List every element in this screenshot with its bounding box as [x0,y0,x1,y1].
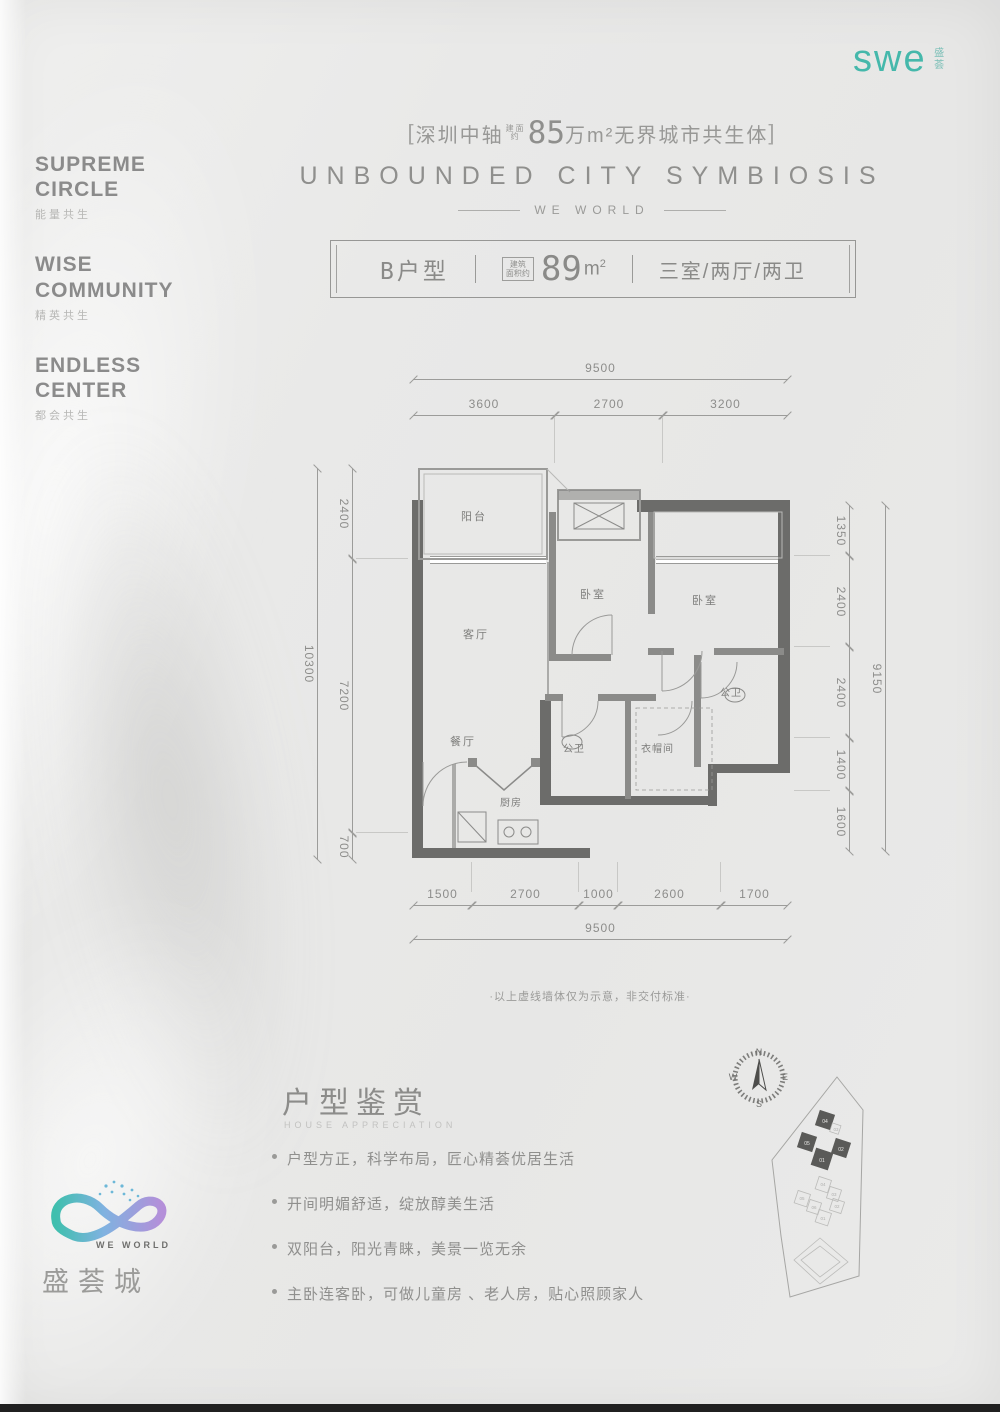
area-unit-m: m [584,258,600,279]
slogan-item: ENDLESS CENTER 都会共生 [35,353,205,423]
extension-line [554,417,555,463]
list-item: 开间明媚舒适，绽放醇美生活 [272,1193,692,1214]
unit-title-bar: B户型 建筑 面积约 89 m2 三室/两厅/两卫 [330,240,856,298]
bullet-icon [272,1199,277,1204]
door-entry [423,762,467,806]
divider [632,255,633,283]
room-label-dining: 餐厅 [450,733,476,749]
unit-rooms: 三室/两厅/两卫 [659,255,806,284]
door-bath-a [562,701,598,737]
balcony-step [547,469,570,492]
dim-left-seg: 2400 [335,468,353,559]
site-buildings-dark: 04 05 02 01 03 [797,1110,851,1170]
dim-left-seg: 7200 [335,559,353,833]
dim-value: 700 [337,835,351,858]
footer-logo: WE WORLD 盛荟城 [34,1168,214,1263]
shaft-hatch [558,490,640,500]
room-label-balcony: 阳台 [461,508,487,524]
header: [ 深圳中轴 建面 约 85 万m²无界城市共生体 ] UNBOUNDED CI… [292,118,892,217]
slogan-en: SUPREME CIRCLE [35,152,205,202]
floor-plan-detail [400,460,800,870]
slogan-en: ENDLESS CENTER [35,353,205,403]
area-tag-line1: 建筑 [510,260,526,269]
bracket-right: ] [768,120,776,146]
brand-logo: swe 盛荟 [853,40,942,78]
door-closet [658,701,692,735]
area-tag: 建筑 面积约 [502,257,534,281]
bracket-left: [ [408,120,416,146]
bullet-icon [272,1289,277,1294]
header-title-en: UNBOUNDED CITY SYMBIOSIS [292,162,892,191]
room-label-bedroom-a: 卧室 [580,586,606,602]
dim-left-overall: 10300 [300,468,318,860]
page-edge-highlight [0,0,26,1412]
slogan-cn: 能量共生 [35,206,205,222]
bay-window-outline [654,512,782,558]
compass-s: S [756,1099,762,1109]
appreciation-subtitle: HOUSE APPRECIATION [284,1120,456,1130]
dim-right-seg: 1600 [832,791,850,852]
extension-line [662,417,663,463]
slogan-en: WISE COMMUNITY [35,252,205,302]
stove-burner [521,827,531,837]
dim-bottom-seg: 1000 [579,888,618,906]
building-label: 02 [838,1147,844,1153]
slogan-item: SUPREME CIRCLE 能量共生 [35,152,205,222]
room-label-bath-a: 公卫 [563,740,585,755]
header-subtitle: WE WORLD [292,203,892,217]
area-number: 89 [541,252,582,286]
dim-value: 1350 [834,515,848,546]
dim-right-seg: 2400 [832,647,850,738]
dim-bottom-seg: 2600 [618,888,721,906]
compass-w: W [729,1072,738,1082]
room-label-closet: 衣帽间 [641,740,674,755]
building-label: 01 [819,1158,825,1164]
unit-name-rest: 户型 [397,258,449,284]
sidebar-slogans: SUPREME CIRCLE 能量共生 WISE COMMUNITY 精英共生 … [35,152,205,453]
door-kitchen-jamb [468,758,477,767]
door-kitchen-v [474,764,534,790]
building-label: 03 [831,1192,837,1197]
bullet-text: 双阳台，阳光青睐，美景一览无余 [287,1238,527,1259]
tagline-area-note: 建面 约 [506,125,526,141]
dim-top-seg: 3200 [663,398,788,416]
plan-note: ·以上虚线墙体仅为示意，非交付标准· [420,988,760,1004]
tagline-suffix: 万m²无界城市共生体 [565,119,768,148]
bullet-text: 户型方正，科学布局，匠心精荟优居生活 [287,1148,575,1169]
footer-logo-en: WE WORLD [96,1240,171,1250]
brand-logo-cn: 盛荟 [932,47,942,71]
dim-right-seg: 1400 [832,738,850,791]
photo-edge [0,1404,1000,1412]
dim-top-seg: 2700 [555,398,663,416]
footer-logo-cn: 盛荟城 [42,1260,150,1299]
site-plan: 04 05 02 01 03 04 03 05 06 02 01 [765,1060,945,1320]
dim-right-seg: 1350 [832,505,850,556]
dim-right-seg: 2400 [832,556,850,647]
divider [475,255,476,283]
room-label-bath-b: 公卫 [720,684,742,699]
list-item: 双阳台，阳光青睐，美景一览无余 [272,1238,692,1259]
building-label: 05 [799,1196,805,1201]
building-label: 05 [804,1141,810,1147]
silk-texture [0,407,344,1194]
dim-bottom-seg: 2700 [472,888,579,906]
brand-logo-text: swe [853,40,927,78]
bullet-text: 开间明媚舒适，绽放醇美生活 [287,1193,495,1214]
building-label: 04 [820,1182,826,1187]
dim-value: 10300 [302,645,316,683]
dim-bottom-seg: 1700 [721,888,788,906]
tagline-number: 85 [528,118,565,148]
sink-cross [458,812,486,842]
area-tag-line2: 面积约 [506,269,530,278]
appreciation-title: 户型鉴赏 [282,1078,430,1122]
dim-left-seg: 700 [335,833,353,860]
room-label-kitchen: 厨房 [500,794,522,809]
tagline-city: 深圳中轴 [416,119,504,148]
rule-right [664,210,726,211]
dim-right-overall: 9150 [868,505,886,852]
building-label: 04 [822,1119,828,1125]
compass-needle-dark [752,1059,759,1090]
dim-bottom-seg: 1500 [413,888,472,906]
dim-value: 2400 [834,586,848,617]
list-item: 主卧连客卧，可做儿童房 、老人房，贴心照顾家人 [272,1283,692,1304]
dim-value: 9150 [870,663,884,694]
dim-value: 2400 [834,677,848,708]
poster-page: swe 盛荟 SUPREME CIRCLE 能量共生 WISE COMMUNIT… [0,0,1000,1412]
slogan-cn: 都会共生 [35,407,205,423]
slogan-item: WISE COMMUNITY 精英共生 [35,252,205,322]
door-bedroom-b [662,651,702,691]
room-label-bedroom-b: 卧室 [692,592,718,608]
bullet-text: 主卧连客卧，可做儿童房 、老人房，贴心照顾家人 [287,1283,644,1304]
dim-top-seg: 3600 [413,398,555,416]
project-tagline: [ 深圳中轴 建面 约 85 万m²无界城市共生体 ] [292,118,892,148]
dim-value: 2400 [337,498,351,529]
tagline-area-note-line2: 约 [511,132,521,141]
dim-value: 1600 [834,806,848,837]
door-kitchen-jamb [531,758,540,767]
rule-left [458,210,520,211]
door-bedroom-a [572,615,612,655]
dim-bottom-overall: 9500 [413,922,788,940]
compass-n: N [756,1047,763,1057]
area-unit-sup: 2 [600,258,606,270]
stove-burner [504,827,514,837]
building-label: 02 [834,1204,840,1209]
dim-value: 7200 [337,681,351,712]
dim-top-overall: 9500 [413,362,788,380]
building-label: 03 [833,1127,839,1132]
area-unit: m2 [584,258,606,280]
unit-name: B户型 [380,252,449,286]
building-label: 01 [820,1216,826,1221]
header-subtitle-text: WE WORLD [534,203,649,217]
list-item: 户型方正，科学布局，匠心精荟优居生活 [272,1148,692,1169]
unit-letter: B [380,259,397,285]
site-boundary [772,1077,863,1297]
room-label-living: 客厅 [463,626,489,642]
unit-area: 建筑 面积约 89 m2 [502,252,606,286]
appreciation-list: 户型方正，科学布局，匠心精荟优居生活 开间明媚舒适，绽放醇美生活 双阳台，阳光青… [272,1148,692,1328]
site-buildings-light [794,1176,848,1284]
building-label: 06 [811,1205,817,1210]
dim-value: 1400 [834,749,848,780]
bullet-icon [272,1154,277,1159]
slogan-cn: 精英共生 [35,307,205,323]
silk-texture [0,864,320,1412]
bullet-icon [272,1244,277,1249]
